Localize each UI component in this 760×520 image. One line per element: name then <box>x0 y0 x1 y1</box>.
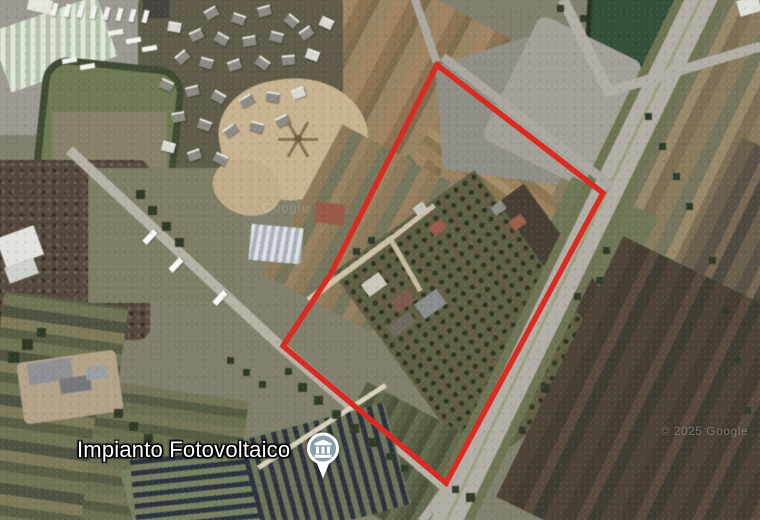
placemark-label-text: Impianto Fotovoltaico <box>77 437 290 462</box>
shed <box>282 54 296 65</box>
classical-building-icon <box>315 440 332 458</box>
building-red-roof <box>314 201 347 226</box>
placemark-pin[interactable] <box>303 431 343 481</box>
building-industrial <box>249 224 304 264</box>
satellite-map-view[interactable]: Impianto Fotovoltaico © 2025 Google Goog… <box>0 0 760 520</box>
attribution-watermark: © 2025 Google <box>661 424 748 438</box>
shed <box>265 91 280 103</box>
shed <box>167 21 182 33</box>
placemark-label: Impianto Fotovoltaico <box>77 437 290 463</box>
ghost-watermark: Google <box>262 200 310 215</box>
tree-cluster <box>0 0 1 1</box>
crane-base <box>294 135 302 142</box>
